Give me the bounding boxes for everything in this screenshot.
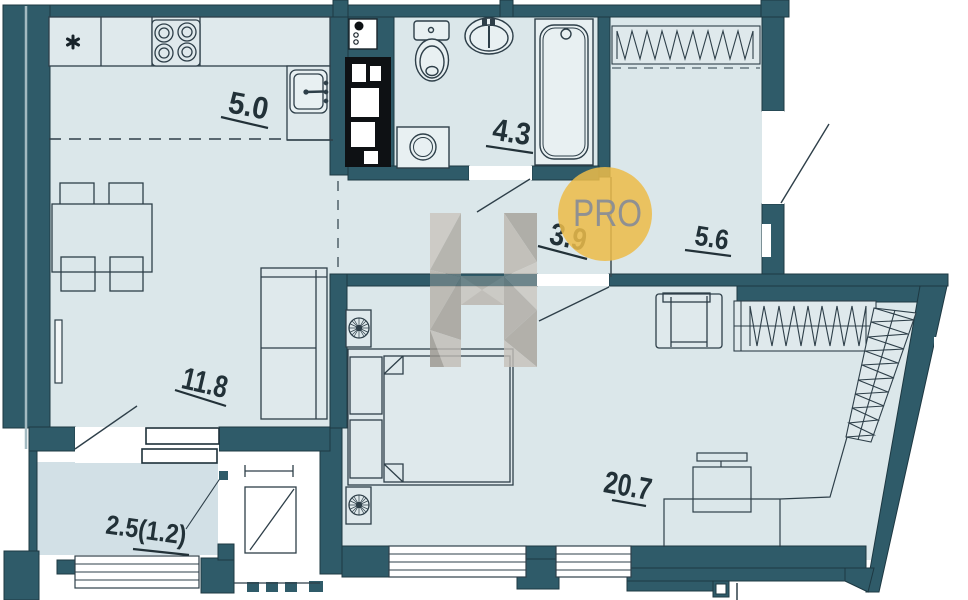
svg-text:PRO: PRO [573,193,642,235]
svg-text:4.3: 4.3 [490,112,533,153]
svg-text:5.6: 5.6 [693,220,731,256]
